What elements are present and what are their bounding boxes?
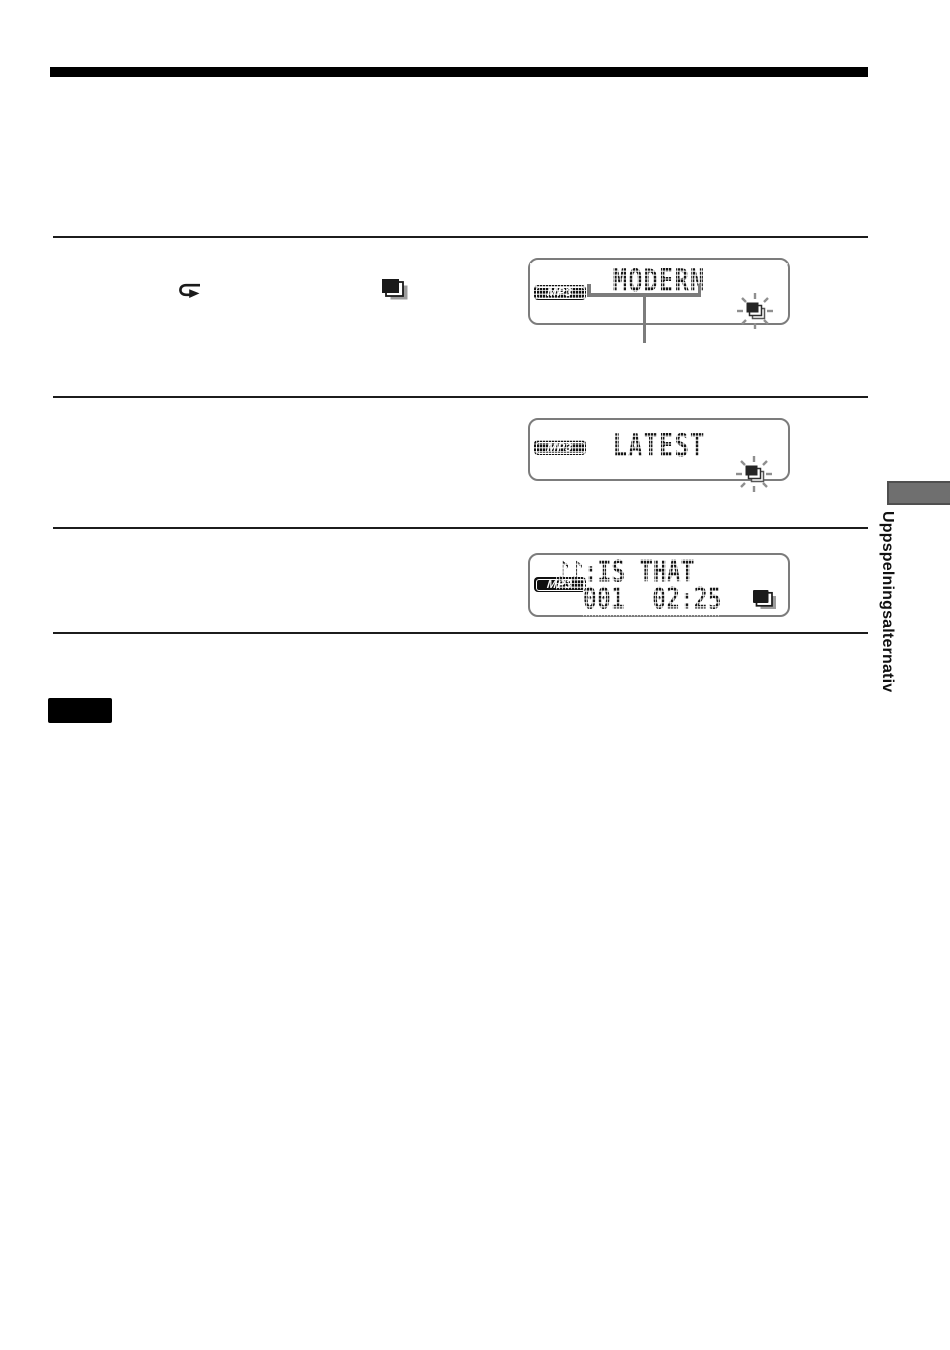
blinking-folder-icon: [734, 454, 774, 494]
callout-line: [643, 293, 647, 343]
chapter-header-bar: [50, 67, 868, 77]
callout-bracket-tick-right: [698, 284, 702, 297]
note-label-box: [48, 698, 112, 723]
folder-stack-icon: [381, 278, 409, 302]
folder-stack-icon: [752, 589, 778, 611]
table-rule-3: [53, 527, 868, 529]
lcd-display-modern: MP3 MODERN: [528, 258, 790, 325]
lcd-display-latest: MP3 LATEST: [528, 418, 790, 481]
section-tab: [887, 481, 950, 505]
manual-page: MP3 MODERN MP3 LATEST: [0, 0, 950, 1350]
lcd-text-track-number-time: 001 02:25: [583, 583, 721, 616]
repeat-mode-icon: [177, 282, 201, 298]
table-rule-2: [53, 396, 868, 398]
table-rule-1: [53, 236, 868, 238]
table-rule-4: [53, 632, 868, 634]
blinking-folder-icon: [735, 291, 775, 331]
callout-bracket-tick-left: [587, 284, 591, 297]
section-title-vertical: Uppspelningsalternativ: [878, 511, 896, 692]
lcd-display-track: MP3 ♪♪:IS THAT 001 02:25: [528, 553, 790, 617]
